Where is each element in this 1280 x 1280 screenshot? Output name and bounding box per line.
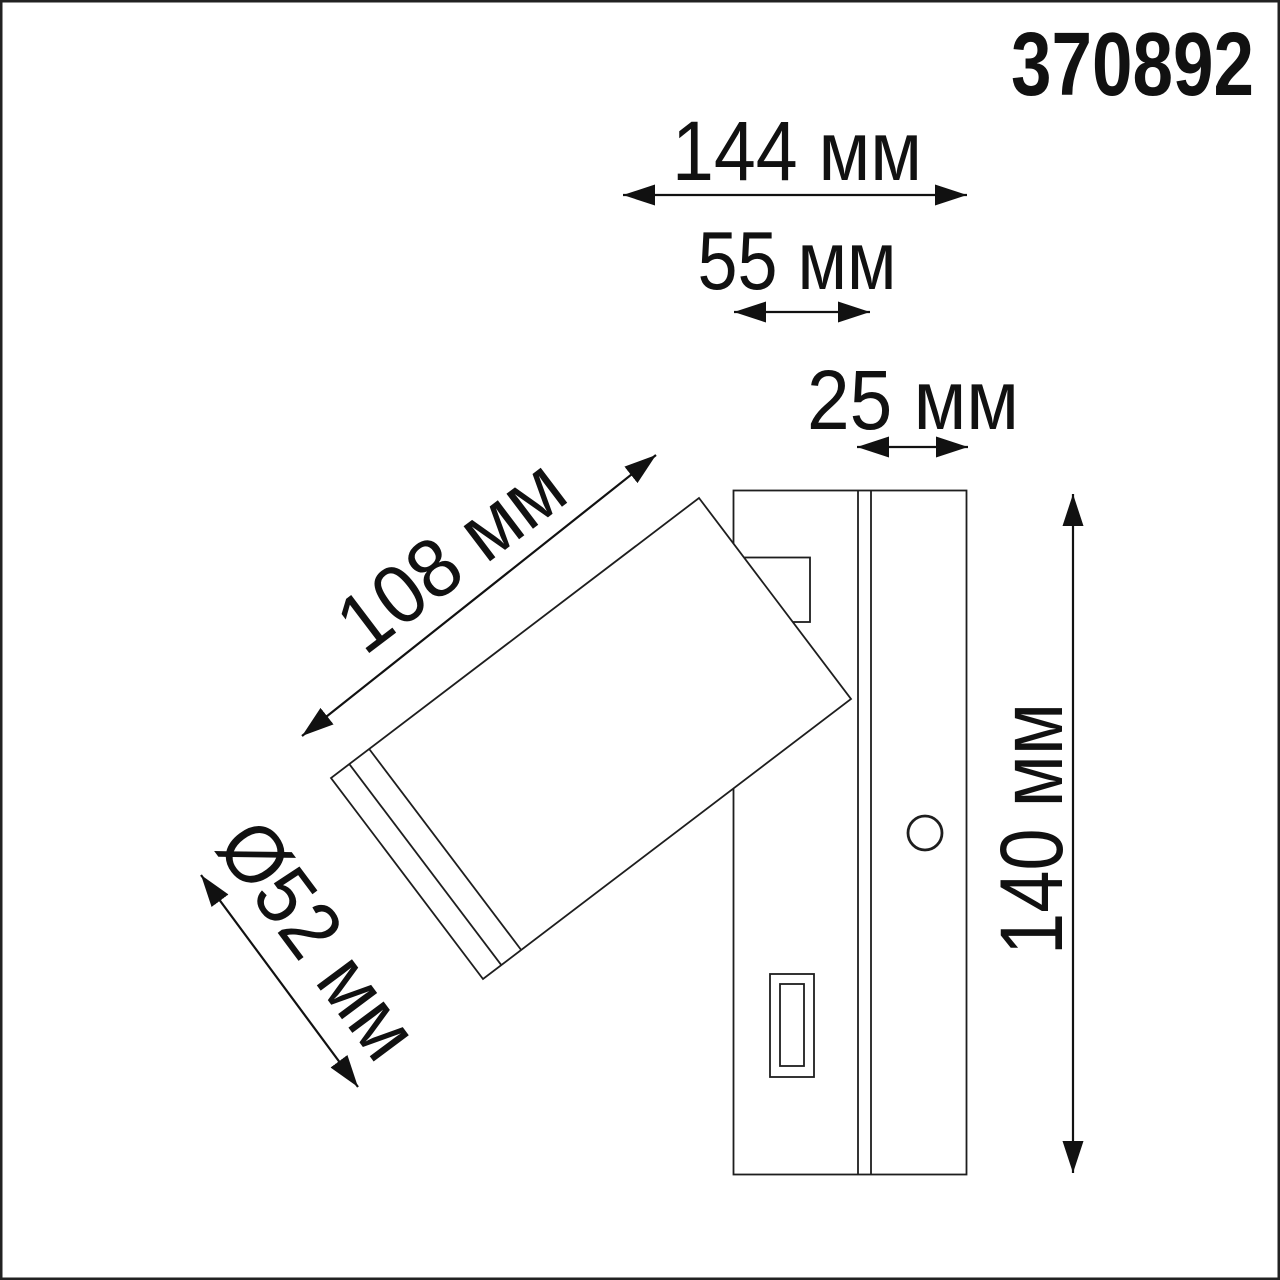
svg-text:140 мм: 140 мм [981, 703, 1081, 955]
svg-text:25 мм: 25 мм [807, 353, 1019, 447]
svg-text:55 мм: 55 мм [698, 214, 897, 307]
svg-text:370892: 370892 [1011, 15, 1254, 115]
svg-text:144 мм: 144 мм [672, 104, 922, 198]
